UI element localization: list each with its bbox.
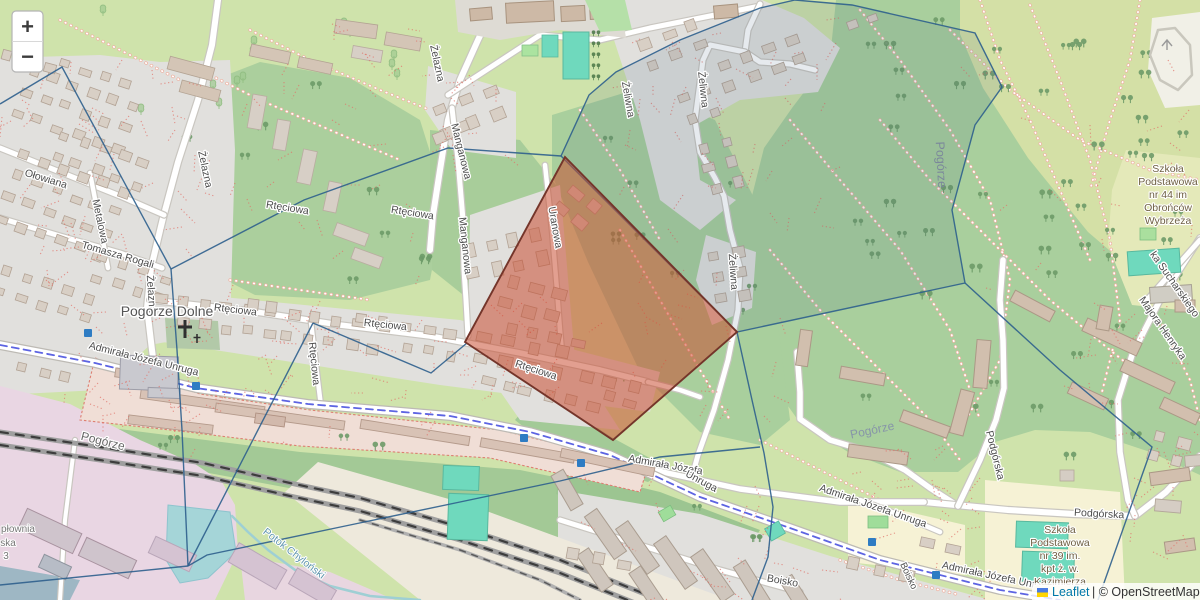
svg-text:−: − bbox=[21, 44, 34, 69]
svg-text:nr 44 im: nr 44 im bbox=[1149, 189, 1187, 201]
svg-text:| © OpenStreetMap: | © OpenStreetMap bbox=[1092, 585, 1200, 599]
svg-text:Wybrzeża: Wybrzeża bbox=[1145, 215, 1192, 227]
svg-text:Podstawowa: Podstawowa bbox=[1138, 176, 1198, 188]
svg-text:Podstawowa: Podstawowa bbox=[1030, 537, 1090, 549]
svg-text:Szkoła: Szkoła bbox=[1152, 163, 1184, 175]
svg-text:Szkoła: Szkoła bbox=[1044, 524, 1076, 536]
svg-text:płownia: płownia bbox=[1, 524, 35, 535]
svg-text:Żeliwna: Żeliwna bbox=[726, 253, 742, 290]
svg-text:Pogórze: Pogórze bbox=[933, 141, 949, 188]
svg-text:Pogorze Dolne: Pogorze Dolne bbox=[121, 303, 214, 319]
svg-text:+: + bbox=[21, 14, 34, 39]
svg-text:nr 39 im.: nr 39 im. bbox=[1040, 550, 1081, 562]
svg-text:Leaflet: Leaflet bbox=[1052, 585, 1090, 599]
svg-text:ska: ska bbox=[0, 538, 16, 549]
svg-text:kpt ż. w.: kpt ż. w. bbox=[1041, 563, 1079, 575]
svg-text:Obrońców: Obrońców bbox=[1144, 202, 1192, 214]
svg-text:3: 3 bbox=[3, 551, 9, 562]
